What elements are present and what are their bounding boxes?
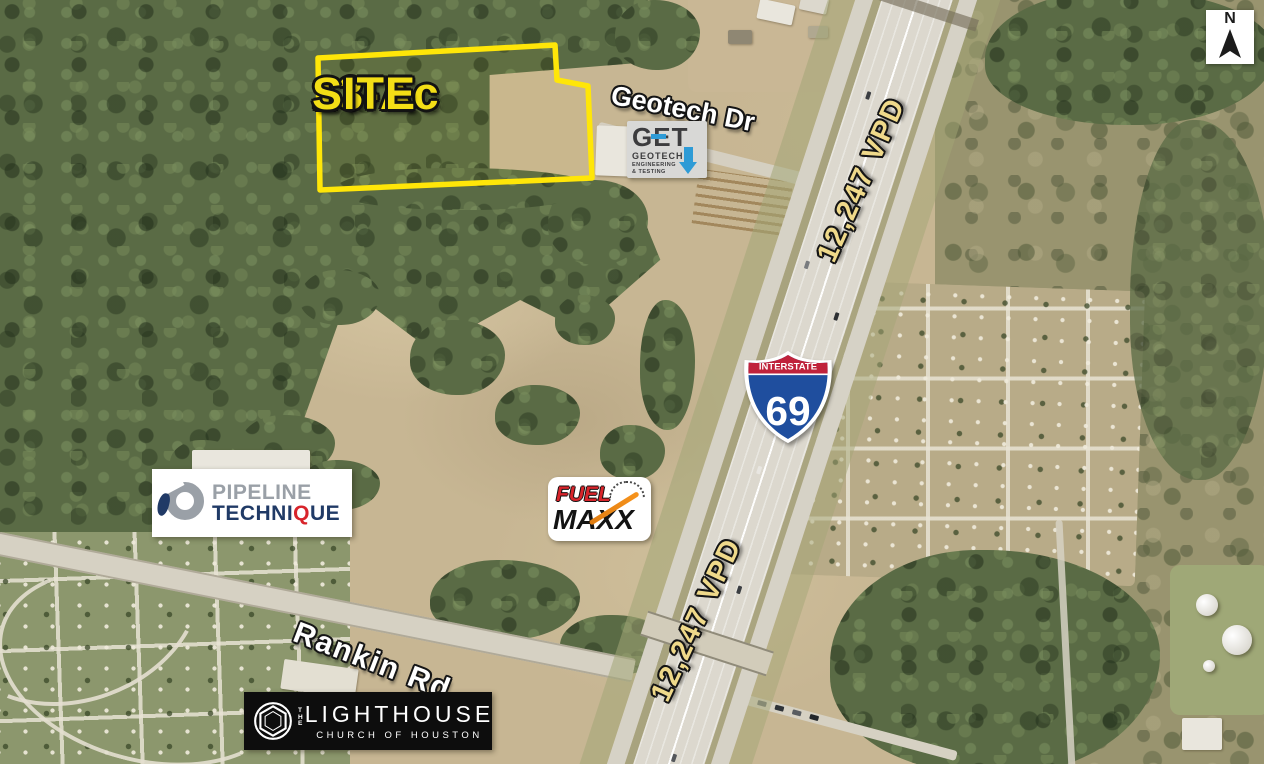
get-logo-company: GEOTECH: [632, 151, 684, 161]
tree-clump: [410, 320, 505, 395]
north-arrow-icon: [1215, 28, 1245, 60]
lighthouse-text: LIGHTHOUSE CHURCH OF HOUSTON: [305, 701, 495, 741]
tree-clump: [600, 425, 665, 480]
get-logo-line2: & TESTING: [632, 169, 666, 175]
pipeline-word2-q: Q: [293, 502, 310, 525]
tree-clump: [615, 0, 700, 70]
north-label: N: [1206, 10, 1254, 28]
tree-clump: [335, 168, 595, 210]
parked-truck: [809, 714, 819, 721]
gauge-arc-icon: [609, 481, 645, 498]
tree-clump: [640, 300, 695, 430]
pipeline-technique-logo: PIPELINE TECHNIQUE: [152, 469, 352, 537]
pipeline-word2-pre: TECHNI: [212, 502, 293, 525]
parked-truck: [792, 709, 802, 716]
interstate-69-shield: INTERSTATE 69: [742, 350, 834, 444]
lighthouse-the: THE: [298, 708, 303, 728]
building: [756, 0, 795, 26]
building: [728, 30, 752, 44]
down-arrow-icon: [684, 147, 693, 162]
pipeline-logo-text: PIPELINE TECHNIQUE: [212, 482, 340, 525]
pipeline-word1: PIPELINE: [212, 482, 340, 503]
water-tank: [1196, 594, 1218, 616]
tree-strip-right: [1130, 120, 1264, 480]
fuel-maxx-logo: FUEL MAXX: [548, 477, 651, 541]
shield-route-number: 69: [765, 388, 810, 434]
tree-clump: [495, 385, 580, 445]
building: [1182, 718, 1222, 750]
site-label-line2: SITE: [312, 62, 416, 126]
down-arrow-icon: [679, 162, 697, 174]
tree-clump: [555, 295, 615, 345]
interstate-shield-icon: INTERSTATE 69: [742, 350, 834, 444]
aerial-map-flyer: 13-Ac SITE Geotech Dr Rankin Rd 12,247 V…: [0, 0, 1264, 764]
lighthouse-subtitle: CHURCH OF HOUSTON: [305, 730, 495, 741]
get-logo-accent-bar: [651, 134, 666, 139]
tree-clump: [300, 270, 380, 325]
geotech-engineering-logo: GET GEOTECH ENGINEERING & TESTING: [627, 121, 707, 178]
pipeline-logo-mark: [158, 479, 206, 527]
lighthouse-name: LIGHTHOUSE: [305, 701, 495, 728]
shield-interstate-text: INTERSTATE: [759, 361, 817, 372]
get-logo-line1: ENGINEERING: [632, 162, 676, 168]
pipeline-word2-post: UE: [310, 502, 340, 525]
north-arrow: N: [1206, 10, 1254, 64]
parked-truck: [774, 705, 784, 712]
pipeline-word2: TECHNIQUE: [212, 503, 340, 524]
lighthouse-church-logo: THE LIGHTHOUSE CHURCH OF HOUSTON: [244, 692, 492, 750]
water-tank: [1203, 660, 1215, 672]
lighthouse-emblem-icon: [252, 700, 294, 742]
water-tank: [1222, 625, 1252, 655]
